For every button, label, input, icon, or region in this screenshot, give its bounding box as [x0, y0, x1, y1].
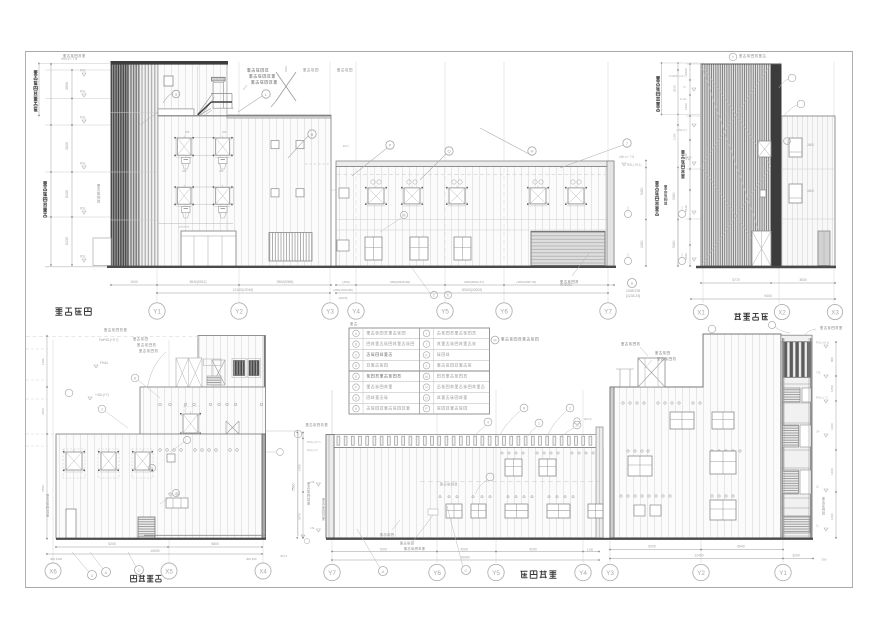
svg-text:Y1: Y1 — [779, 570, 787, 577]
svg-text:7500: 7500 — [292, 483, 296, 491]
svg-text:5430: 5430 — [65, 237, 69, 245]
svg-text:RSL: RSL — [80, 69, 86, 73]
svg-text:4490: 4490 — [684, 253, 688, 260]
svg-text:F+9L: F+9L — [680, 97, 687, 101]
svg-text:FwRSL(+9.7): FwRSL(+9.7) — [669, 74, 687, 78]
svg-text:6200: 6200 — [108, 542, 116, 546]
svg-text:Y4: Y4 — [352, 308, 360, 315]
svg-text:Y2: Y2 — [697, 570, 705, 577]
svg-text:Y6: Y6 — [500, 308, 508, 315]
svg-text:10: 10 — [575, 424, 579, 428]
svg-text:A: A — [105, 570, 108, 575]
svg-text:1940: 1940 — [130, 280, 138, 284]
svg-text:RSL: RSL — [80, 162, 86, 166]
svg-text:X2: X2 — [778, 309, 786, 316]
svg-text:RSL: RSL — [80, 90, 86, 94]
svg-text:1400: 1400 — [830, 513, 834, 520]
svg-text:3600: 3600 — [807, 143, 814, 147]
svg-text:455: 455 — [222, 130, 227, 134]
svg-text:9360(9366): 9360(9366) — [277, 280, 294, 284]
svg-text:462.5: 462.5 — [280, 554, 288, 558]
svg-text:1SL: 1SL — [310, 526, 316, 530]
svg-text:7500: 7500 — [41, 485, 45, 492]
svg-text:12400: 12400 — [694, 554, 703, 558]
svg-text:Y7: Y7 — [604, 308, 612, 315]
svg-text:5430: 5430 — [672, 240, 676, 248]
svg-text:3500: 3500 — [65, 82, 69, 90]
svg-text:Q: Q — [447, 149, 450, 154]
svg-text:E: E — [355, 375, 357, 379]
svg-text:[1234.24]: [1234.24] — [626, 294, 640, 298]
svg-text:M: M — [403, 214, 406, 218]
svg-text:1400: 1400 — [684, 103, 688, 110]
svg-text:Y7: Y7 — [328, 570, 336, 577]
svg-text:L: L — [426, 364, 428, 368]
svg-text:20000(20002): 20000(20002) — [462, 288, 483, 292]
svg-text:400 2340: 400 2340 — [50, 557, 62, 561]
svg-text:M: M — [425, 375, 428, 379]
svg-text:400 300: 400 300 — [246, 557, 257, 561]
svg-text:1100: 1100 — [41, 358, 45, 365]
svg-text:RSL(+9.7): RSL(+9.7) — [307, 440, 321, 444]
svg-text:X5: X5 — [165, 568, 173, 575]
svg-text:C: C — [138, 568, 141, 573]
svg-text:455: 455 — [182, 169, 187, 173]
svg-text:5430: 5430 — [65, 190, 69, 198]
svg-text:5940(5912): 5940(5912) — [190, 280, 207, 284]
svg-text:FH&L: FH&L — [100, 361, 109, 365]
svg-text:Y2: Y2 — [235, 308, 243, 315]
svg-text:+4SL(+7): +4SL(+7) — [95, 393, 109, 397]
svg-text:455: 455 — [219, 169, 224, 173]
svg-text:X6: X6 — [49, 568, 57, 575]
svg-text:4: 4 — [487, 421, 489, 425]
svg-text:n9n-v+ 7.8: n9n-v+ 7.8 — [61, 57, 77, 61]
svg-text:3470: 3470 — [298, 513, 302, 520]
svg-text:I: I — [426, 332, 427, 336]
svg-text:EXJ: EXJ — [343, 144, 349, 148]
svg-text:455: 455 — [185, 130, 190, 134]
svg-text:Y3: Y3 — [326, 308, 334, 315]
svg-text:3830: 3830 — [65, 142, 69, 150]
svg-text:F: F — [355, 386, 357, 390]
svg-text:5940: 5940 — [737, 545, 745, 549]
svg-text:2830: 2830 — [673, 85, 677, 92]
svg-text:1: 1 — [538, 422, 540, 426]
svg-text:Y5: Y5 — [441, 308, 449, 315]
svg-text:9400: 9400 — [764, 294, 772, 298]
svg-text:RSL: RSL — [80, 207, 86, 211]
svg-text:P: P — [389, 143, 392, 148]
svg-text:1400: 1400 — [830, 468, 834, 475]
svg-text:1450: 1450 — [830, 385, 834, 392]
svg-text:2: 2 — [101, 408, 103, 412]
svg-text:3200: 3200 — [792, 554, 800, 558]
svg-text:X1: X1 — [697, 309, 705, 316]
svg-text:X3: X3 — [831, 309, 839, 316]
svg-text:1: 1 — [151, 467, 153, 471]
svg-text:4200: 4200 — [460, 548, 468, 552]
svg-text:3630: 3630 — [799, 278, 807, 282]
svg-text:C: C — [465, 568, 468, 573]
svg-text:+9SL(7): +9SL(7) — [676, 128, 687, 132]
svg-text:4200(6392.67): 4200(6392.67) — [464, 280, 484, 284]
svg-text:n9n-v+ 7.8: n9n-v+ 7.8 — [619, 155, 634, 159]
svg-text:A: A — [631, 281, 634, 286]
svg-text:(2023): (2023) — [339, 296, 348, 300]
svg-text:H: H — [531, 149, 534, 154]
svg-text:FwRSL(+9.7): FwRSL(+9.7) — [99, 338, 119, 342]
svg-text:6800: 6800 — [211, 542, 219, 546]
svg-text:3A: 3A — [816, 430, 820, 434]
svg-text:1400: 1400 — [298, 464, 302, 471]
svg-text:(450(1940-88): (450(1940-88) — [333, 288, 353, 292]
svg-text:9200: 9200 — [529, 548, 537, 552]
svg-text:Y6: Y6 — [433, 570, 441, 577]
svg-text:RSL: RSL — [80, 255, 86, 259]
svg-text:Y1: Y1 — [153, 308, 161, 315]
svg-text:X4: X4 — [259, 568, 267, 575]
svg-text:xx(xxxx): xx(xxxx) — [178, 225, 189, 229]
svg-text:B: B — [311, 132, 314, 137]
svg-text:(450): (450) — [342, 280, 349, 284]
svg-text:2400: 2400 — [41, 408, 45, 415]
svg-text:7L: 7L — [683, 85, 687, 89]
svg-text:2SL: 2SL — [310, 480, 316, 484]
svg-text:1L: 1L — [816, 524, 820, 528]
svg-text:19000: 19000 — [460, 556, 469, 560]
svg-text:P: P — [425, 407, 427, 411]
svg-text:B: B — [355, 343, 357, 347]
svg-text:(EXJ): (EXJ) — [584, 417, 592, 421]
svg-text:Y4: Y4 — [579, 570, 587, 577]
svg-text:Y3: Y3 — [606, 570, 614, 577]
svg-text:RSL(+.7): RSL(+.7) — [816, 396, 828, 400]
svg-text:FwL(+7): FwL(+7) — [307, 448, 318, 452]
svg-text:7SL: 7SL — [816, 371, 822, 375]
svg-text:15000: 15000 — [150, 549, 159, 553]
svg-text:1038.978: 1038.978 — [626, 289, 640, 293]
svg-text:1100: 1100 — [673, 133, 677, 140]
svg-text:+200(4395.78): +200(4395.78) — [516, 280, 536, 284]
svg-text:3430: 3430 — [672, 192, 676, 200]
svg-text:RSL: RSL — [80, 116, 86, 120]
svg-text:RSL(+8.1): RSL(+8.1) — [627, 163, 642, 167]
svg-text:4500(3940-88): 4500(3940-88) — [390, 280, 410, 284]
svg-text:2: 2 — [569, 407, 571, 411]
svg-text:5430: 5430 — [640, 187, 644, 195]
svg-text:12100(12016): 12100(12016) — [233, 288, 254, 292]
svg-text:7200: 7200 — [379, 548, 387, 552]
svg-text:1100: 1100 — [587, 548, 594, 552]
svg-text:300: 300 — [822, 558, 827, 562]
svg-text:800: 800 — [830, 357, 834, 362]
svg-text:5770: 5770 — [732, 278, 740, 282]
svg-text:3600: 3600 — [807, 189, 814, 193]
svg-text:RSL(+8.1): RSL(+8.1) — [816, 341, 829, 345]
svg-text:A: A — [382, 569, 385, 574]
svg-text:Y5: Y5 — [492, 570, 500, 577]
svg-text:5430: 5430 — [684, 205, 688, 212]
svg-text:2L: 2L — [816, 485, 820, 489]
svg-text:1400: 1400 — [830, 423, 834, 430]
svg-text:2430: 2430 — [640, 240, 644, 248]
svg-text:M: M — [494, 339, 497, 343]
svg-text:6200: 6200 — [648, 545, 656, 549]
